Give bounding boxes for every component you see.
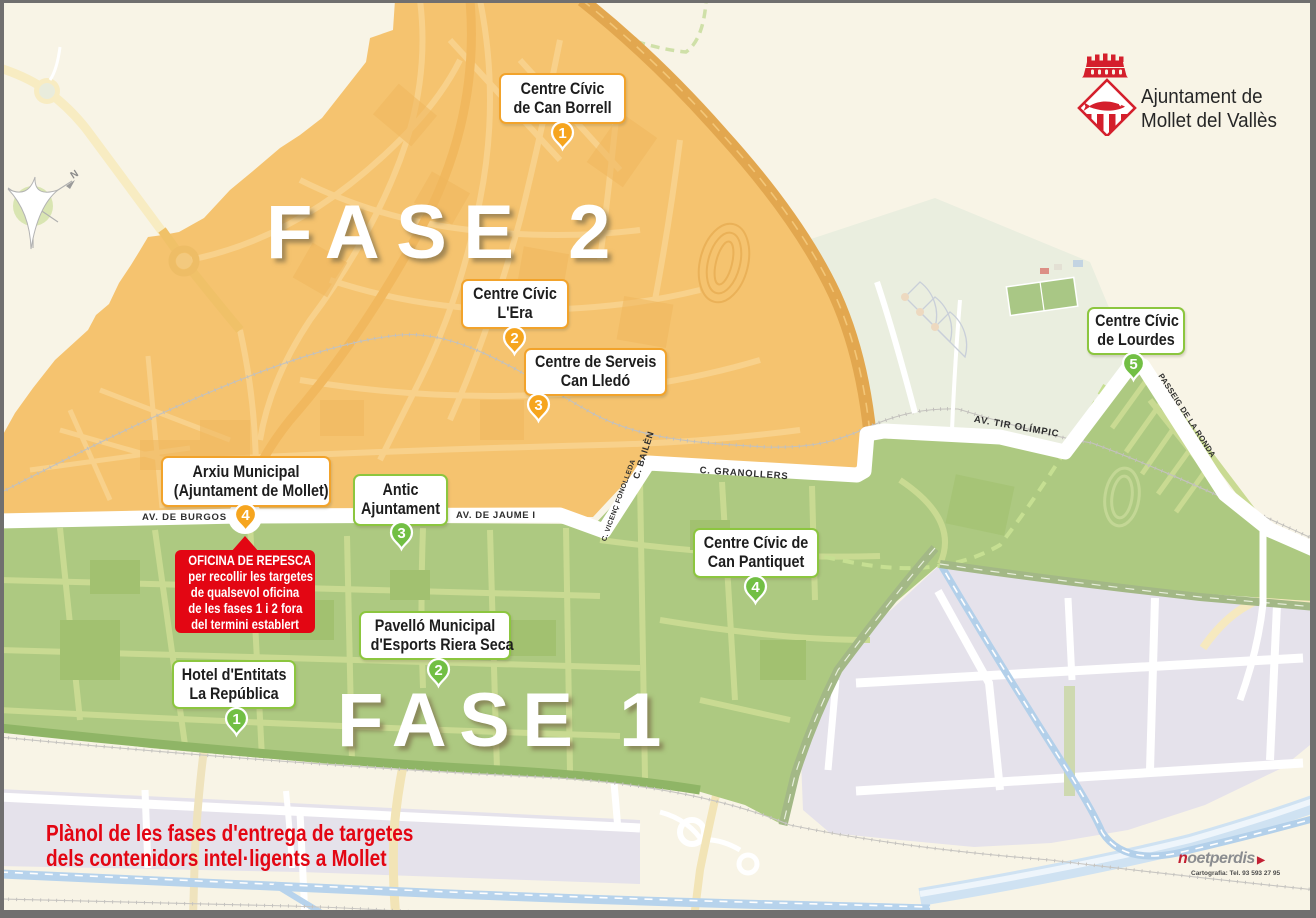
svg-text:1: 1 <box>232 711 240 728</box>
svg-text:5: 5 <box>1129 356 1137 373</box>
svg-text:4: 4 <box>241 507 250 524</box>
svg-text:1: 1 <box>558 125 566 142</box>
svg-text:3: 3 <box>397 525 405 542</box>
svg-text:4: 4 <box>751 579 760 596</box>
svg-text:3: 3 <box>534 397 542 414</box>
svg-text:2: 2 <box>434 662 442 679</box>
svg-text:2: 2 <box>510 330 518 347</box>
